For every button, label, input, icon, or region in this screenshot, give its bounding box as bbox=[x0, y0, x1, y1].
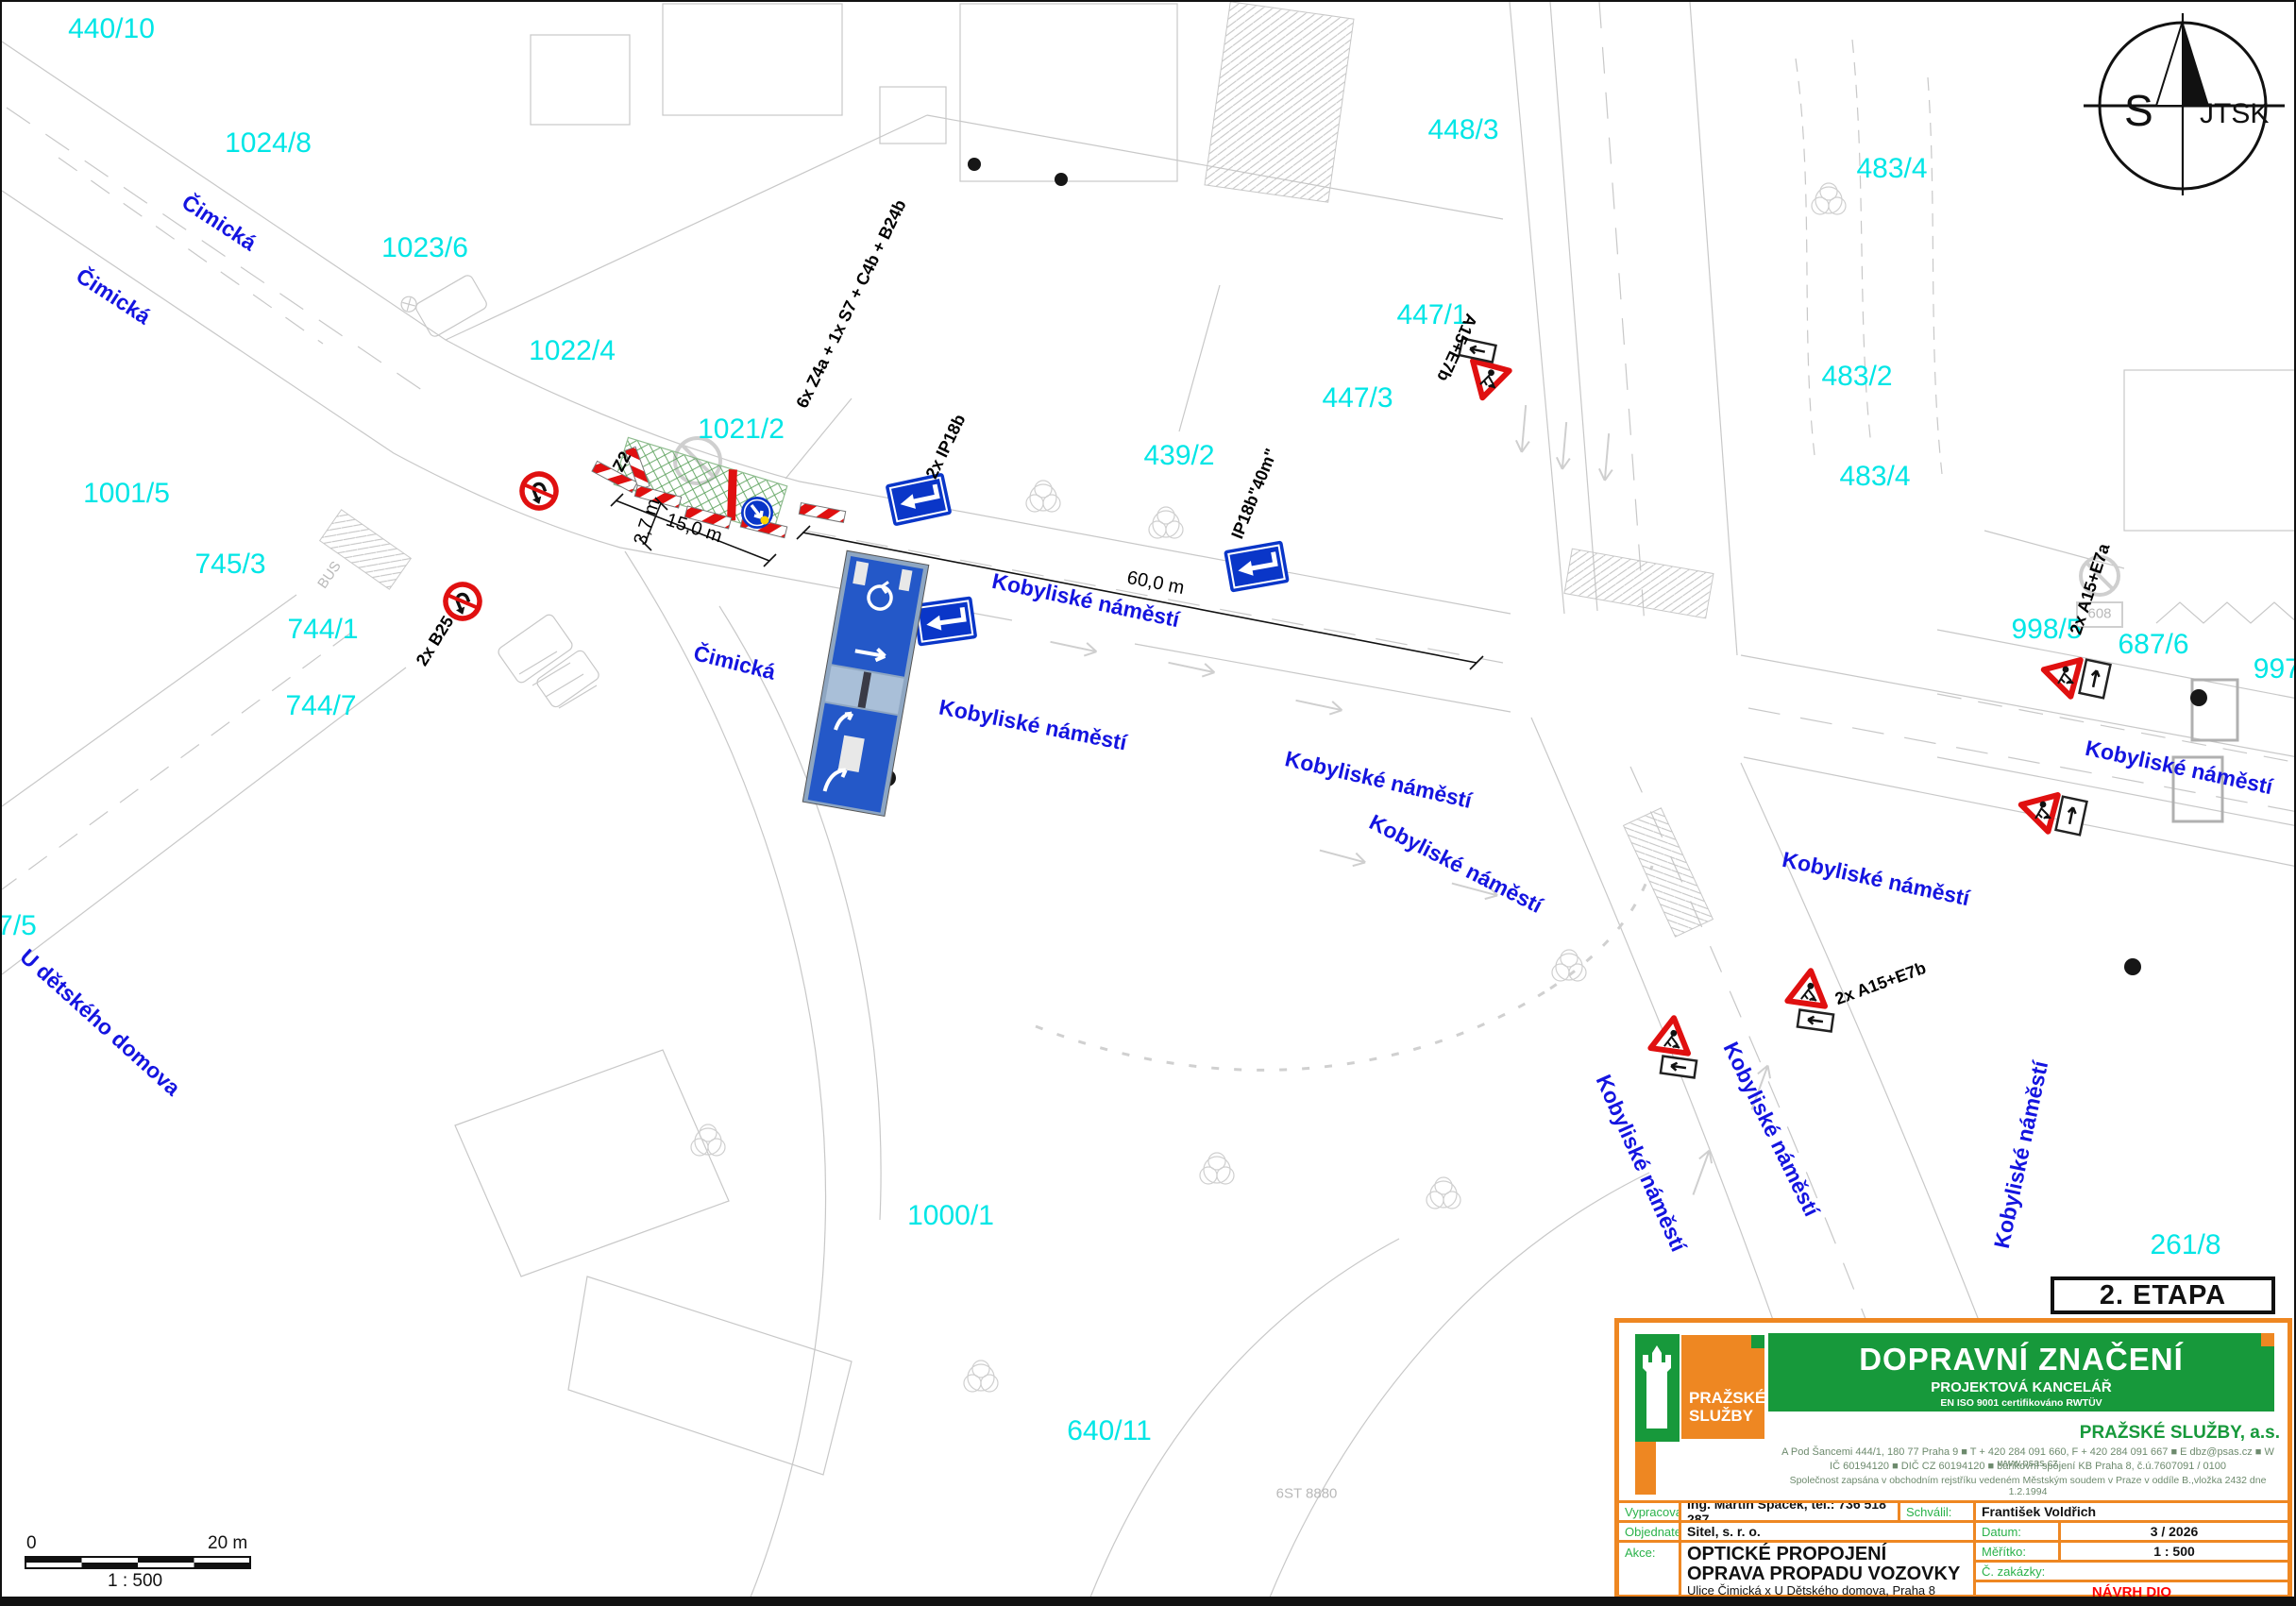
meritko-value: 1 : 500 bbox=[2061, 1543, 2288, 1563]
faint-label: 6ST 8880 bbox=[1276, 1486, 1338, 1502]
e7a-plate-3 bbox=[2056, 797, 2087, 836]
akce-line-1: OPTICKÉ PROPOJENÍ bbox=[1687, 1545, 1967, 1564]
logo-name: PRAŽSKÉ SLUŽBY bbox=[1689, 1389, 1765, 1426]
meritko-label: Měřítko: bbox=[1976, 1543, 2061, 1563]
schvalil-label: Schválil: bbox=[1900, 1503, 1976, 1523]
parcel-label: 1022/4 bbox=[529, 335, 616, 367]
parcel-label: 1024/8 bbox=[225, 127, 312, 160]
akce-label: Akce: bbox=[1619, 1543, 1681, 1602]
parcel-label: 687/6 bbox=[2118, 629, 2188, 661]
parcel-label: 1023/6 bbox=[381, 232, 468, 264]
parcel-label: 745/3 bbox=[194, 549, 265, 581]
vypracoval-value: Ing. Martin Špaček, tel.: 736 518 287 bbox=[1681, 1503, 1900, 1523]
scale-ratio-label: 1 : 500 bbox=[108, 1571, 162, 1592]
parcel-label: 640/11 bbox=[1067, 1415, 1152, 1447]
scale-end-label: 20 m bbox=[208, 1533, 247, 1554]
faint-label: 608 bbox=[2087, 606, 2111, 622]
parcel-label: 744/7 bbox=[285, 690, 356, 722]
title-table: Vypracoval: Ing. Martin Špaček, tel.: 73… bbox=[1619, 1500, 2288, 1598]
ip18b-sign-3 bbox=[913, 597, 977, 646]
s7-beacon bbox=[761, 516, 769, 525]
sheet-frame-bottom bbox=[2, 1597, 2296, 1604]
banner-iso: EN ISO 9001 certifikováno RWTÜV bbox=[1768, 1397, 2274, 1409]
parcel-label: 448/3 bbox=[1427, 114, 1498, 146]
parcel-label: 1021/2 bbox=[698, 414, 785, 446]
company-contact-2: IČ 60194120 ■ DIČ CZ 60194120 ■ bankovní… bbox=[1770, 1461, 2286, 1472]
schvalil-value: František Voldřich bbox=[1976, 1503, 2288, 1523]
company-contact-3: Společnost zapsána v obchodním rejstříku… bbox=[1770, 1475, 2286, 1497]
stage-label: 2. ETAPA bbox=[2051, 1276, 2275, 1314]
akce-line-2: OPRAVA PROPADU VOZOVKY bbox=[1687, 1564, 1967, 1584]
parcel-label: 440/10 bbox=[68, 13, 155, 45]
datum-value: 3 / 2026 bbox=[2061, 1523, 2288, 1543]
e7b-plate-5 bbox=[1661, 1057, 1697, 1078]
datum-label: Datum: bbox=[1976, 1523, 2061, 1543]
parcel-label: 447/3 bbox=[1322, 382, 1393, 414]
parcel-label: 483/2 bbox=[1821, 361, 1892, 393]
parcel-label: 997/ bbox=[2254, 653, 2296, 685]
vypracoval-label: Vypracoval: bbox=[1619, 1503, 1681, 1523]
banner-title: DOPRAVNÍ ZNAČENÍ bbox=[1768, 1342, 2274, 1378]
scale-bar bbox=[25, 1557, 250, 1568]
utility-point-dots bbox=[879, 158, 2207, 975]
company-logo bbox=[1635, 1334, 1680, 1442]
ip18b-sign-1 bbox=[886, 473, 952, 526]
traffic-plan-sheet: 440/101024/81023/61022/41021/21001/5745/… bbox=[0, 0, 2296, 1606]
b25-sign-1 bbox=[517, 469, 562, 514]
a15-sign-5 bbox=[1650, 1015, 1692, 1053]
parcel-label: 744/1 bbox=[287, 614, 358, 646]
e7b-plate-4 bbox=[1798, 1010, 1833, 1032]
parcel-label: 1001/5 bbox=[83, 478, 170, 510]
compass-south-letter: S bbox=[2124, 85, 2153, 136]
a15-sign-4 bbox=[1787, 968, 1829, 1006]
a15-sign-1 bbox=[1464, 361, 1510, 402]
a15-sign-2 bbox=[2039, 651, 2081, 697]
castle-icon bbox=[1643, 1345, 1671, 1428]
akce-value: OPTICKÉ PROPOJENÍ OPRAVA PROPADU VOZOVKY… bbox=[1681, 1543, 1976, 1602]
e7a-plate-2 bbox=[2080, 660, 2111, 699]
banner-subtitle: PROJEKTOVÁ KANCELÁŘ bbox=[1768, 1379, 2274, 1395]
parcel-label: 439/2 bbox=[1143, 440, 1214, 472]
company-name: PRAŽSKÉ SLUŽBY, a.s. bbox=[2080, 1423, 2280, 1444]
parcel-label: 483/4 bbox=[1839, 461, 1910, 493]
parcel-label: 261/8 bbox=[2150, 1229, 2220, 1261]
title-block: PRAŽSKÉ SLUŽBY DOPRAVNÍ ZNAČENÍ PROJEKTO… bbox=[1614, 1318, 2292, 1599]
parcel-label: 483/4 bbox=[1856, 153, 1927, 185]
zakazky-label: Č. zakázky: bbox=[1976, 1563, 2288, 1582]
a15-sign-3 bbox=[2017, 786, 2058, 832]
north-needle bbox=[2183, 21, 2209, 106]
objednatel-value: Sitel, s. r. o. bbox=[1681, 1523, 1976, 1543]
objednatel-label: Objednatel: bbox=[1619, 1523, 1681, 1543]
compass-system-label: JTSK bbox=[2200, 98, 2269, 130]
parcel-label: 7/5 bbox=[0, 910, 37, 942]
parcel-label: 1000/1 bbox=[907, 1200, 994, 1232]
c4b-bypass-sign bbox=[741, 497, 773, 529]
photo-directional-signs bbox=[802, 550, 929, 816]
akce-line-3: Ulice Čimická x U Dětského domova, Praha… bbox=[1687, 1584, 1967, 1598]
title-banner: DOPRAVNÍ ZNAČENÍ PROJEKTOVÁ KANCELÁŘ EN … bbox=[1768, 1333, 2274, 1412]
scale-start-label: 0 bbox=[26, 1533, 37, 1554]
ip18b-sign-2 bbox=[1224, 541, 1290, 592]
